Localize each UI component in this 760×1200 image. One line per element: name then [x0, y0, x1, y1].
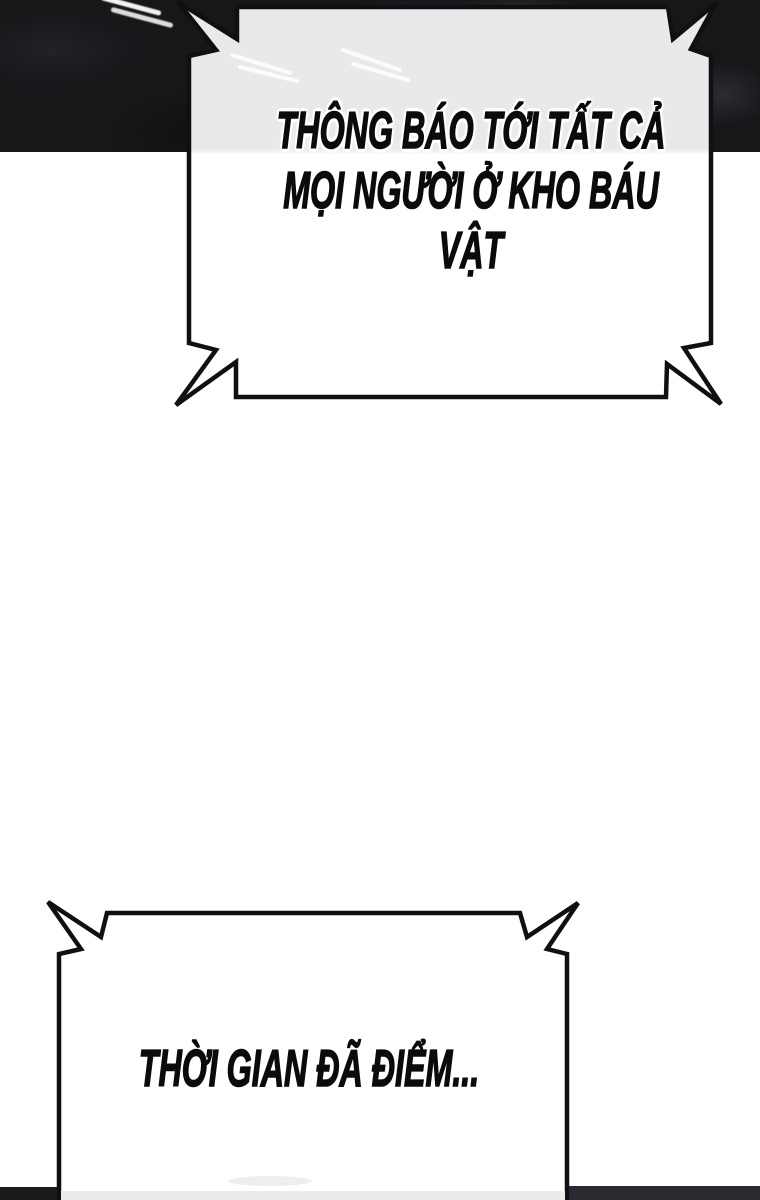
text-line: VẬT — [223, 221, 719, 281]
bubble-shade-smudge — [228, 1176, 312, 1186]
comic-page: THÔNG BÁO TỚI TẤT CẢ MỌI NGƯỜI Ở KHO BÁU… — [0, 0, 760, 1200]
text-line: THỜI GIAN ĐÃ ĐIỂM... — [61, 1039, 557, 1099]
bottom-left-dark-band — [0, 1187, 60, 1200]
announcement-text-top: THÔNG BÁO TỚI TẤT CẢ MỌI NGƯỜI Ở KHO BÁU… — [223, 101, 719, 281]
text-line: MỌI NGƯỜI Ở KHO BÁU — [223, 161, 719, 221]
bubble-bottom-tint — [61, 1191, 565, 1200]
bottom-right-dark-band — [566, 1186, 760, 1200]
text-line: THÔNG BÁO TỚI TẤT CẢ — [223, 101, 719, 161]
announcement-text-bottom: THỜI GIAN ĐÃ ĐIỂM... — [61, 1039, 557, 1099]
